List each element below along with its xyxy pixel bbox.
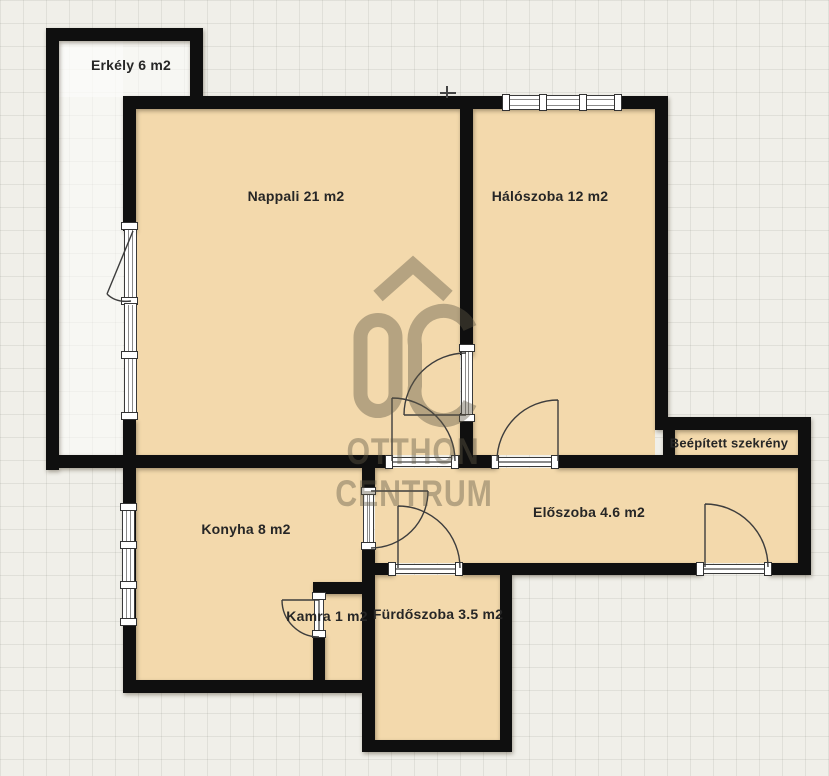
window-cap <box>539 94 547 111</box>
door-jamb <box>455 562 463 576</box>
wall <box>362 740 512 752</box>
door-jamb <box>764 562 772 576</box>
wall <box>123 96 136 231</box>
wall <box>655 96 668 430</box>
room-label-szekreny: Beépített szekrény <box>670 436 788 451</box>
door-sill <box>461 350 473 420</box>
window <box>506 95 620 110</box>
door-sill <box>391 564 462 574</box>
door-jamb <box>551 455 559 469</box>
door-jamb <box>491 455 499 469</box>
window-cap <box>121 351 138 359</box>
window-cap <box>579 94 587 111</box>
wall <box>500 563 701 575</box>
room-label-eloszoba: Előszoba 4.6 m2 <box>533 504 645 520</box>
window-cap <box>120 503 137 511</box>
window-cap <box>120 581 137 589</box>
door-jamb <box>451 455 459 469</box>
door-jamb <box>385 455 393 469</box>
wall <box>46 28 203 41</box>
wall <box>663 417 811 430</box>
balcony-door <box>124 228 137 302</box>
door-jamb <box>361 542 376 550</box>
entrance-door-sill <box>699 564 770 574</box>
wall <box>456 455 496 468</box>
door-jamb <box>459 344 475 352</box>
wall <box>46 28 59 470</box>
dimension-tick <box>446 86 448 98</box>
wall <box>313 634 325 693</box>
window <box>122 506 135 624</box>
door-jamb <box>459 414 475 422</box>
window <box>124 303 137 419</box>
wall <box>123 680 375 693</box>
room-label-haloszoba: Hálószoba 12 m2 <box>492 188 609 204</box>
window-cap <box>614 94 622 111</box>
dimension-tick <box>440 92 456 94</box>
wall <box>798 417 811 575</box>
wall <box>500 563 512 752</box>
door-sill <box>494 457 558 467</box>
room-label-erkely: Erkély 6 m2 <box>91 57 171 73</box>
room-label-kamra: Kamra 1 m2 <box>286 608 367 624</box>
window-cap <box>502 94 510 111</box>
floor-plan: OTTHON CENTRUM Erkély 6 m2 Nappali 21 m2… <box>0 0 829 776</box>
wall <box>556 455 798 468</box>
window-cap <box>120 541 137 549</box>
door-jamb <box>312 592 326 600</box>
window-cap <box>121 222 138 230</box>
room-label-nappali: Nappali 21 m2 <box>248 188 345 204</box>
wall <box>46 455 390 468</box>
door-jamb <box>312 630 326 638</box>
door-jamb <box>388 562 396 576</box>
window-cap <box>121 412 138 420</box>
wall <box>460 96 473 355</box>
room-label-konyha: Konyha 8 m2 <box>201 521 290 537</box>
door-jamb <box>361 487 376 495</box>
door-sill <box>363 491 374 548</box>
door-sill <box>388 457 458 467</box>
room-label-furdoszoba: Fürdőszoba 3.5 m2 <box>373 606 503 622</box>
window-cap <box>120 618 137 626</box>
wall <box>768 563 811 575</box>
door-jamb <box>696 562 704 576</box>
